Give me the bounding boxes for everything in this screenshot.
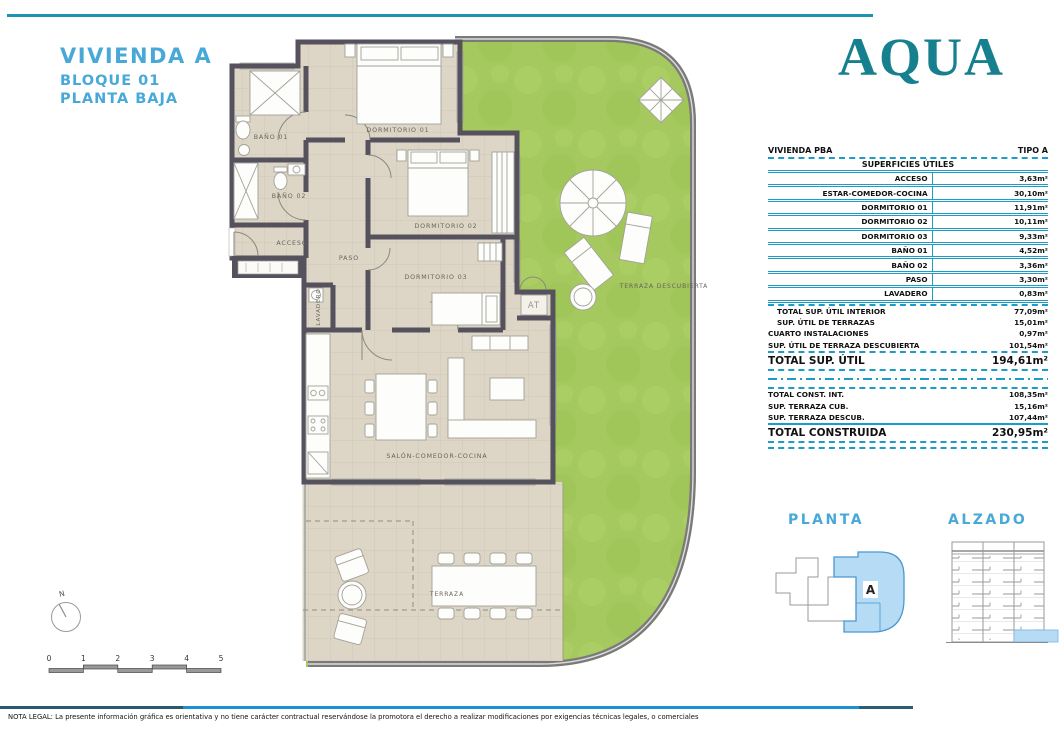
table-row: BAÑO 023,36m² [768,259,1048,273]
room-label-dormitorio01: DORMITORIO 01 [366,127,429,134]
room-label-at: AT [528,301,540,311]
scale-tick: 0 [47,654,52,663]
block-subtitle: BLOQUE 01 [60,72,212,90]
ground-floor-highlight [1014,630,1058,642]
table-header-right: TIPO A [1018,146,1048,155]
room-label-terraza-descubierta: TERRAZA DESCUBIERTA [619,283,708,290]
bottom-rule-left [0,706,183,709]
areas-table: VIVIENDA PBA TIPO A SUPERFICIES ÚTILES A… [768,144,1048,449]
total-util-row: TOTAL SUP. ÚTIL194,61m² [768,353,1048,369]
table-row: TOTAL CONST. INT.108,35m² [768,389,1048,400]
table-row: SUP. TERRAZA CUB.15,16m² [768,400,1048,411]
unit-letter: A [866,583,876,597]
scale-tick: 1 [81,654,86,663]
table-row: BAÑO 014,52m² [768,245,1048,259]
legal-note: NOTA LEGAL: La presente información gráf… [8,713,1008,721]
areas-table-header: VIVIENDA PBA TIPO A [768,144,1048,159]
alzado-title: ALZADO [948,512,1027,528]
north-label: N [58,589,66,599]
table-row: LAVADERO0,83m² [768,288,1048,302]
north-arrow: N [44,586,90,636]
table-row: TOTAL SUP. ÚTIL INTERIOR77,09m² [768,306,1048,317]
table-row: CUARTO INSTALACIONES0,97m² [768,328,1048,339]
planta-key-diagram: A [768,543,928,653]
brand-logo: AQUA [838,26,1005,88]
page-title: VIVIENDA A [60,44,212,68]
room-label-acceso: ACCESO [276,240,307,247]
bottom-rule-right [859,706,913,709]
table-row: DORMITORIO 039,33m² [768,231,1048,245]
room-label-lavadero: LAVADERO [316,288,322,325]
room-label-bano01: BAÑO 01 [254,132,289,141]
brochure-page: VIVIENDA A BLOQUE 01 PLANTA BAJA AQUA [0,0,1063,731]
alzado-key-diagram [938,538,1060,650]
scale-tick: 4 [184,654,189,663]
table-row: DORMITORIO 0210,11m² [768,216,1048,230]
scale-bar: 0 1 2 3 4 5 [44,652,226,678]
room-label-dormitorio02: DORMITORIO 02 [414,223,477,230]
floor-subtitle: PLANTA BAJA [60,90,212,108]
scale-tick: 3 [150,654,155,663]
header-block: VIVIENDA A BLOQUE 01 PLANTA BAJA [60,44,212,108]
room-label-terraza: TERRAZA [429,591,464,598]
table-row: ACCESO3,63m² [768,173,1048,187]
room-label-bano02: BAÑO 02 [272,191,307,200]
scale-tick: 5 [219,654,224,663]
scale-tick: 2 [115,654,120,663]
table-row: PASO3,30m² [768,274,1048,288]
planta-title: PLANTA [788,512,864,528]
table-row: ESTAR-COMEDOR-COCINA30,10m² [768,187,1048,201]
table-row: SUP. TERRAZA DESCUB.107,44m² [768,412,1048,423]
top-rule [7,14,873,17]
table-row: SUP. ÚTIL DE TERRAZA DESCUBIERTA101,54m² [768,340,1048,351]
room-label-dormitorio03: DORMITORIO 03 [404,274,467,281]
table-row: SUP. ÚTIL DE TERRAZAS15,01m² [768,317,1048,328]
table-row: DORMITORIO 0111,91m² [768,202,1048,216]
bottom-rule-mid [183,706,859,709]
room-label-salon: SALÓN-COMEDOR-COCINA [386,451,487,460]
table-section-title: SUPERFICIES ÚTILES [768,159,1048,173]
floor-plan: BAÑO 01 BAÑO 02 ACCESO PASO DORMITORIO 0… [225,30,760,680]
total-built-row: TOTAL CONSTRUIDA230,95m² [768,425,1048,441]
table-header-left: VIVIENDA PBA [768,146,832,155]
room-label-paso: PASO [339,255,359,262]
